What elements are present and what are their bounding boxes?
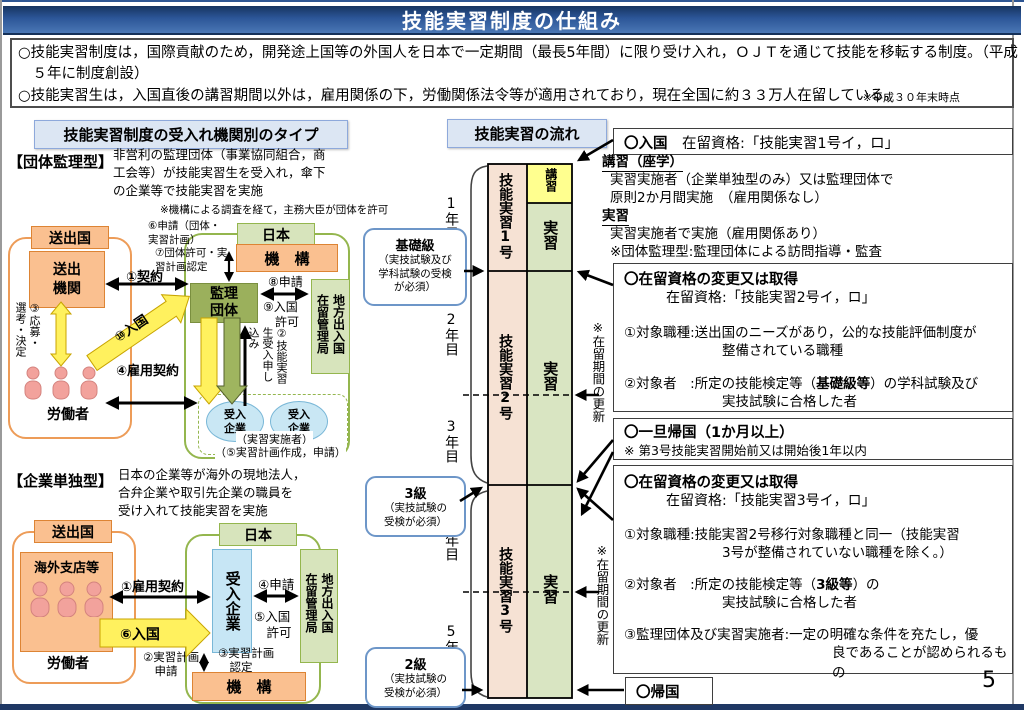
dantai-step1-label: ①契約 bbox=[126, 266, 163, 285]
dantai-sending-country-text: 送出国 bbox=[49, 228, 91, 248]
title-banner: 技能実習制度の仕組み bbox=[3, 6, 1021, 35]
exam-2kyu-title: 2級 bbox=[367, 654, 464, 673]
kigyo-company-text: 受入企業 bbox=[223, 571, 240, 631]
frame-bottom-line bbox=[0, 704, 1024, 710]
dantai-step4-label: ④雇用契約 bbox=[116, 360, 179, 379]
dantai-step5-label: （⑤実習計画作成，申請） bbox=[215, 444, 346, 460]
kigyo-kiko-text: 機 構 bbox=[226, 676, 271, 697]
dantai-note: ※機構による調査を経て，主務大臣が団体を許可 bbox=[160, 202, 388, 217]
dantai-sending-country-label: 送出国 bbox=[31, 226, 109, 249]
visa3-heading: 〇在留資格の変更又は取得 bbox=[624, 471, 798, 492]
koshu-label: 講習 bbox=[543, 168, 557, 202]
kigyo-overseas-box: 海外支店等 bbox=[20, 552, 113, 652]
dantai-step9-label: ⑨入国 許可 bbox=[263, 300, 299, 330]
kigyo-label: 【企業単独型】 bbox=[8, 470, 113, 491]
visa3-item2-line2: 実技試験に合格した者 bbox=[722, 591, 857, 611]
slide: 技能実習制度の仕組み ○技能実習制度は，国際貢献のため，開発途上国等の外国人を日… bbox=[0, 0, 1024, 710]
timeline-jisshu-column bbox=[527, 203, 572, 698]
dantai-immigration-box: 地方出入国 在留管理局 bbox=[311, 279, 350, 374]
koshu-text-block: 講習（座学） 実習実施者（企業単独型のみ）又は監理団体で 原則2か月間実施 （雇… bbox=[602, 153, 1012, 261]
person-icon bbox=[29, 581, 51, 617]
dantai-sending-org-box: 送出 機関 bbox=[29, 251, 105, 308]
nyukoku-box: 〇入国 在留資格:「技能実習1号イ，ロ」 bbox=[613, 128, 1013, 155]
kigyo-workers-label: 労働者 bbox=[36, 653, 100, 673]
bracket-stage3 bbox=[471, 491, 487, 697]
kigyo-immigration-text: 地方出入国 在留管理局 bbox=[303, 573, 335, 639]
page-number: 5 bbox=[982, 668, 996, 693]
visa2-box: 〇在留資格の変更又は取得 在留資格:「技能実習2号イ，ロ」 ①対象職種:送出国の… bbox=[613, 263, 1013, 412]
exam-kiso-title: 基礎級 bbox=[365, 235, 465, 254]
koshu-block-line2: 原則2か月間実施 （雇用関係なし） bbox=[602, 189, 1012, 207]
jisshu-label-2: 実習 bbox=[541, 361, 558, 395]
dantai-step12-label: ⑫指導・支援 bbox=[226, 322, 237, 404]
kikoku-interim-heading: 〇一旦帰国（1か月以上） bbox=[624, 421, 794, 442]
dantai-kanri-text: 監理 団体 bbox=[210, 286, 238, 321]
visa3-item2-line1: ②対象者 :所定の技能検定等（3級等）の bbox=[624, 573, 880, 593]
visa2-item2-post: ）の学科試験及び bbox=[870, 376, 978, 392]
nyukoku-detail: 在留資格:「技能実習1号イ，ロ」 bbox=[668, 136, 900, 152]
stage1-label: 技能実習1号 bbox=[497, 173, 513, 263]
kigyo-sending-country-text: 送出国 bbox=[52, 522, 94, 542]
overview-note: ※平成３０年末時点 bbox=[863, 89, 960, 105]
dantai-japan-label: 日本 bbox=[237, 223, 315, 246]
dantai-workers-label: 労働者 bbox=[36, 404, 100, 424]
visa3-item1-line1: ①対象職種:技能実習2号移行対象職種と同一（技能実習 bbox=[624, 523, 960, 543]
kikoku-final-box: 〇帰国 bbox=[625, 677, 713, 705]
stage2-label: 技能実習2号 bbox=[497, 334, 513, 424]
visa2-item1-line2: 整備されている職種 bbox=[722, 339, 843, 359]
exam-3kyu-title: 3級 bbox=[367, 483, 464, 502]
jisshu-label-1: 実習 bbox=[541, 220, 558, 254]
kigyo-immigration-box: 地方出入国 在留管理局 bbox=[300, 549, 338, 663]
nyukoku-heading: 〇入国 bbox=[624, 136, 668, 152]
jisshu-label-3: 実習 bbox=[541, 574, 558, 608]
kikoku-interim-note: ※ 第3号技能実習開始前又は開始後1年以内 bbox=[624, 440, 867, 459]
kigyo-step1-label: ①雇用契約 bbox=[121, 576, 184, 595]
koshu-block-title: 講習（座学） bbox=[602, 154, 683, 172]
dantai-label: 【団体監理型】 bbox=[8, 151, 113, 172]
year-label-2: 2年目 bbox=[443, 309, 459, 359]
dantai-step11-label: ⑪技能実習開始 bbox=[203, 322, 214, 404]
kigyo-japan-text: 日本 bbox=[244, 525, 272, 545]
kigyo-step4-label: ④申請 bbox=[258, 574, 294, 593]
exam-2kyu-box: 2級 （実技試験の 受検が必須） bbox=[365, 647, 466, 708]
jisshu-block-title: 実習 bbox=[602, 208, 629, 226]
dantai-step7-label: ⑦団体許可・実 習計画認定 bbox=[155, 247, 227, 274]
visa2-item2-line1: ②対象者 :所定の技能検定等（基礎級等）の学科試験及び bbox=[624, 372, 978, 392]
dantai-kiko-box: 機 構 bbox=[236, 244, 338, 272]
left-section-header-label: 技能実習制度の受入れ機関別のタイプ bbox=[63, 124, 318, 145]
visa3-item3-line1: ③監理団体及び実習実施者:一定の明確な条件を充たし，優 bbox=[624, 623, 978, 643]
exam-3kyu-box: 3級 （実技試験の 受検が必須） bbox=[365, 476, 466, 537]
arrow-visa3-to-timeline bbox=[578, 489, 613, 520]
person-icon bbox=[78, 366, 100, 400]
kigyo-step5-label: ⑤入国 許可 bbox=[254, 609, 292, 640]
kikoku-interim-box: 〇一旦帰国（1か月以上） ※ 第3号技能実習開始前又は開始後1年以内 bbox=[613, 418, 1013, 460]
visa2-item2-line2: 実技試験に合格した者 bbox=[722, 390, 857, 410]
flow-section-header-label: 技能実習の流れ bbox=[474, 123, 579, 144]
arrow-visa2-to-timeline bbox=[579, 272, 613, 285]
page-title: 技能実習制度の仕組み bbox=[402, 5, 622, 34]
exam-3kyu-sub: （実技試験の 受検が必須） bbox=[367, 502, 464, 529]
koshu-block-line1: 実習実施者（企業単独型のみ）又は監理団体で bbox=[602, 171, 1012, 189]
renewal-note-2: ※在留期間の更新 bbox=[594, 543, 608, 655]
dantai-workers-group bbox=[22, 366, 104, 402]
person-icon bbox=[56, 581, 78, 617]
year-label-3: 3年目 bbox=[443, 416, 459, 466]
kigyo-step2-label: ②実習計画 申請 bbox=[143, 650, 199, 679]
frame-top-line bbox=[0, 0, 1024, 2]
frame-left-line bbox=[0, 0, 2, 710]
exam-kiso-sub: （実技試験及び 学科試験の受検 が必須） bbox=[365, 254, 465, 295]
visa3-box: 〇在留資格の変更又は取得 在留資格:「技能実習3号イ，ロ」 ①対象職種:技能実習… bbox=[613, 465, 1013, 674]
dantai-kiko-text: 機 構 bbox=[264, 248, 309, 269]
dantai-kanri-box: 監理 団体 bbox=[190, 283, 258, 323]
person-icon bbox=[22, 366, 44, 400]
dantai-immigration-text: 地方出入国 在留管理局 bbox=[315, 294, 347, 360]
kigyo-company-box: 受入企業 bbox=[212, 549, 252, 653]
left-section-header: 技能実習制度の受入れ機関別のタイプ bbox=[34, 120, 348, 149]
bracket-stage12 bbox=[471, 166, 487, 483]
visa2-sub: 在留資格:「技能実習2号イ，ロ」 bbox=[666, 287, 876, 307]
jisshu-block-line2: ※団体監理型:監理団体による訪問指導・監査 bbox=[602, 243, 1012, 261]
kigyo-overseas-text: 海外支店等 bbox=[34, 557, 99, 576]
kigyo-japan-label: 日本 bbox=[219, 523, 297, 546]
kigyo-desc: 日本の企業等が海外の現地法人， 合弁企業や取引先企業の職員を 受け入れて技能実習… bbox=[118, 466, 306, 519]
dantai-step3-label: ③応募・ 選考・決定 bbox=[13, 302, 41, 366]
dantai-step2-label: ②技能実習 生受入申し 込み bbox=[246, 327, 288, 387]
kigyo-kiko-box: 機 構 bbox=[192, 672, 306, 701]
kigyo-sending-country-label: 送出国 bbox=[34, 520, 112, 543]
exam-2kyu-sub: （実技試験の 受検が必須） bbox=[367, 673, 464, 700]
person-icon bbox=[83, 581, 105, 617]
kigyo-step3-label: ③実習計画 認定 bbox=[218, 646, 274, 675]
person-icon bbox=[50, 366, 72, 400]
dantai-japan-text: 日本 bbox=[262, 225, 290, 245]
stage3-label: 技能実習3号 bbox=[497, 547, 513, 637]
visa3-sub: 在留資格:「技能実習3号イ，ロ」 bbox=[666, 490, 876, 510]
visa3-item1-line2: 3号が整備されていない職種を除く。） bbox=[722, 541, 953, 561]
flow-section-header: 技能実習の流れ bbox=[447, 119, 607, 148]
arrow-interim-to-timeline-a bbox=[578, 440, 613, 481]
overview-box: ○技能実習制度は，国際貢献のため，開発途上国等の外国人を日本で一定期間（最長5年… bbox=[10, 38, 1014, 108]
overview-bullet-1: ○技能実習制度は，国際貢献のため，開発途上国等の外国人を日本で一定期間（最長5年… bbox=[18, 43, 1019, 84]
jisshu-block-line1: 実習実施者で実施（雇用関係あり） bbox=[602, 225, 1012, 243]
visa2-item1-line1: ①対象職種:送出国のニーズがあり，公的な技能評価制度が bbox=[624, 321, 977, 341]
visa2-heading: 〇在留資格の変更又は取得 bbox=[624, 268, 798, 289]
dantai-step6-label: ⑥申請（団体・ 実習計画） bbox=[148, 220, 220, 247]
renewal-note-1: ※在留期間の更新 bbox=[590, 320, 604, 432]
dantai-step8-label: ⑧申請 bbox=[268, 273, 303, 290]
exam-kiso-box: 基礎級 （実技試験及び 学科試験の受検 が必須） bbox=[363, 228, 467, 306]
kigyo-step6-label: ⑥入国 bbox=[120, 624, 160, 644]
kikoku-final-text: 〇帰国 bbox=[626, 681, 680, 702]
dantai-sending-org-text: 送出 機関 bbox=[53, 261, 81, 297]
dantai-desc: 非営利の監理団体（事業協同組合，商 工会等）が技能実習生を受入れ，傘下 の企業等… bbox=[113, 146, 326, 199]
arrow-interim-to-timeline-b bbox=[582, 452, 613, 514]
